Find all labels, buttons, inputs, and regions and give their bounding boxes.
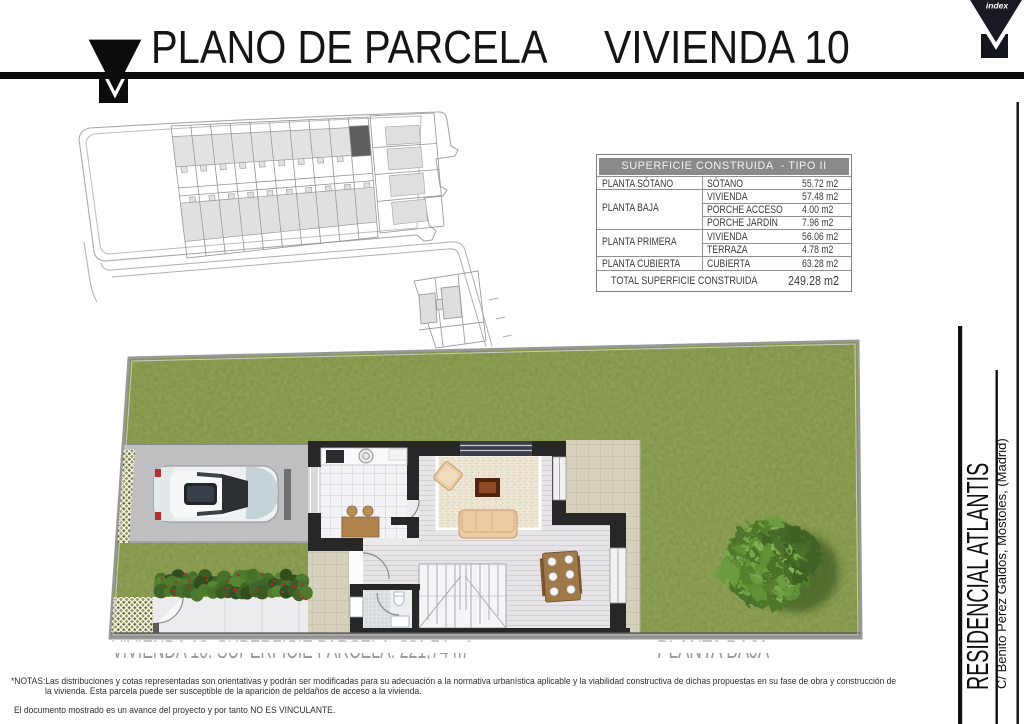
- svg-text:index: index: [986, 1, 1009, 11]
